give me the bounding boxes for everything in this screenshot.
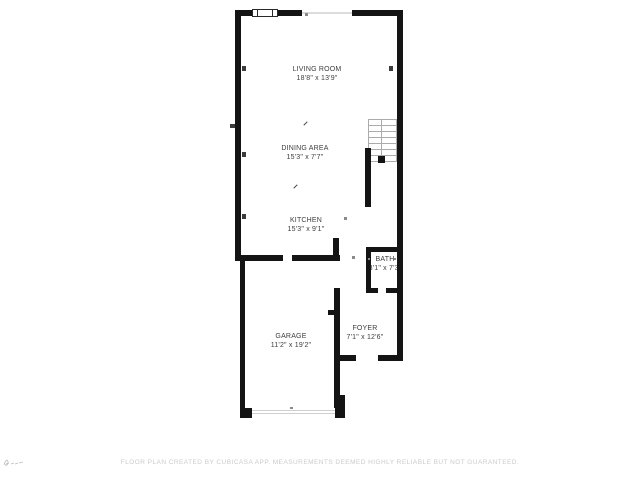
- room-label-living-room: LIVING ROOM 18'8" x 13'9": [267, 65, 367, 83]
- room-label-kitchen: KITCHEN 15'3" x 9'1": [256, 216, 356, 234]
- door-hinge-mark: [368, 258, 370, 260]
- door-leaf-garage: [328, 310, 336, 315]
- wall-foyer-bottom-right: [378, 355, 403, 361]
- wall-kitchen-right-upper: [333, 238, 339, 261]
- window-top: [252, 9, 278, 17]
- fixture-mark: [303, 121, 307, 125]
- floor-plan-page: LIVING ROOM 18'8" x 13'9" DINING AREA 15…: [0, 0, 640, 480]
- wall-tick: [389, 66, 393, 71]
- door-hinge-mark: [394, 258, 396, 260]
- room-dims: 15'3" x 9'1": [256, 225, 356, 234]
- room-name: DINING AREA: [255, 144, 355, 153]
- wall-tick: [242, 66, 246, 71]
- opening-top-mark: [305, 13, 308, 16]
- staircase-landing-mark: [378, 156, 385, 163]
- wall-tick: [242, 152, 246, 157]
- wall-garage-bottom-left: [242, 408, 252, 418]
- garage-door: [252, 410, 335, 414]
- window-pane-line: [272, 10, 273, 16]
- window-pane-line: [257, 10, 258, 16]
- wall-foyer-bottom-left: [334, 355, 356, 361]
- disclaimer-text: FLOOR PLAN CREATED BY CUBICASA APP. MEAS…: [0, 459, 640, 466]
- signature-watermark-icon: [2, 455, 28, 469]
- room-label-dining-area: DINING AREA 15'3" x 7'7": [255, 144, 355, 162]
- wall-hall-under-stairs: [365, 148, 371, 207]
- room-name: LIVING ROOM: [267, 65, 367, 74]
- room-dims: 15'3" x 7'7": [255, 153, 355, 162]
- opening-top: [302, 12, 352, 14]
- room-dims: 11'2" x 19'2": [241, 341, 341, 350]
- room-name: KITCHEN: [256, 216, 356, 225]
- wall-top-right-segment: [352, 10, 403, 16]
- wall-left-garage: [240, 258, 245, 418]
- fixture-mark: [344, 217, 347, 220]
- wall-bath-bottom-right: [386, 288, 403, 293]
- fixture-mark: [293, 184, 297, 188]
- wall-top-mid-segment: [278, 10, 302, 16]
- fixture-mark: [352, 256, 355, 259]
- wall-bath-left: [366, 247, 371, 293]
- garage-door-mark: [290, 407, 293, 409]
- wall-left-upper: [235, 10, 241, 258]
- wall-right: [397, 10, 403, 361]
- room-label-garage: GARAGE 11'2" x 19'2": [241, 332, 341, 350]
- wall-garage-right: [334, 288, 340, 408]
- wall-garage-bottom-right: [335, 395, 345, 418]
- wall-bath-bottom-left: [366, 288, 378, 293]
- room-name: GARAGE: [241, 332, 341, 341]
- wall-tick: [230, 124, 235, 128]
- wall-tick: [242, 214, 246, 219]
- wall-kitchen-garage-left: [235, 255, 283, 261]
- wall-bath-top: [366, 247, 403, 252]
- room-dims: 18'8" x 13'9": [267, 74, 367, 83]
